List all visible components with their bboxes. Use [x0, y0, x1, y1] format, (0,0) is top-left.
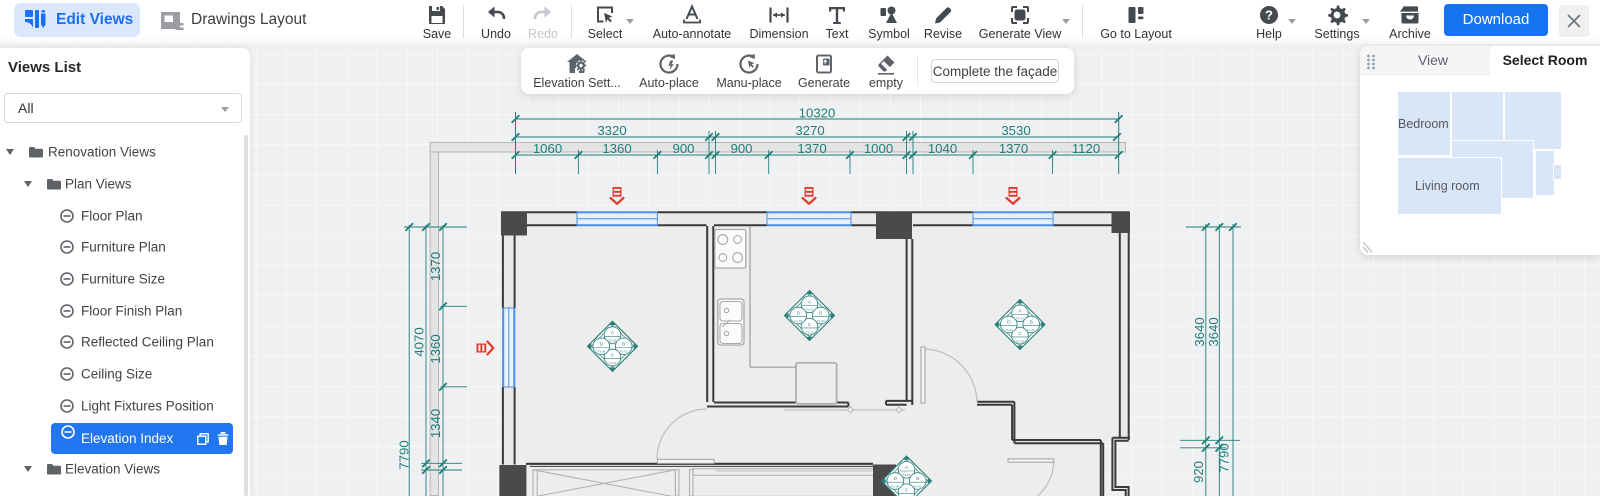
- svg-text:7790: 7790: [396, 440, 411, 469]
- svg-text:1000: 1000: [864, 141, 893, 156]
- svg-text:1370: 1370: [428, 252, 443, 281]
- svg-text:1060: 1060: [533, 141, 562, 156]
- svg-text:10320: 10320: [799, 106, 836, 121]
- svg-text:1360: 1360: [602, 141, 631, 156]
- svg-text:3640: 3640: [1192, 317, 1207, 346]
- svg-text:920: 920: [1191, 461, 1206, 483]
- svg-text:4070: 4070: [412, 327, 427, 356]
- svg-text:7790: 7790: [1217, 443, 1232, 472]
- svg-text:3530: 3530: [1001, 123, 1030, 138]
- svg-text:3320: 3320: [597, 123, 626, 138]
- svg-text:1340: 1340: [428, 409, 443, 438]
- svg-text:3270: 3270: [795, 123, 824, 138]
- svg-text:3640: 3640: [1206, 317, 1221, 346]
- svg-text:?: ?: [1265, 8, 1273, 23]
- svg-text:1370: 1370: [999, 141, 1028, 156]
- svg-text:1370: 1370: [797, 141, 826, 156]
- svg-text:900: 900: [672, 141, 694, 156]
- svg-text:1360: 1360: [428, 334, 443, 363]
- svg-text:1120: 1120: [1072, 141, 1100, 156]
- svg-text:900: 900: [730, 141, 752, 156]
- svg-text:1040: 1040: [928, 141, 957, 156]
